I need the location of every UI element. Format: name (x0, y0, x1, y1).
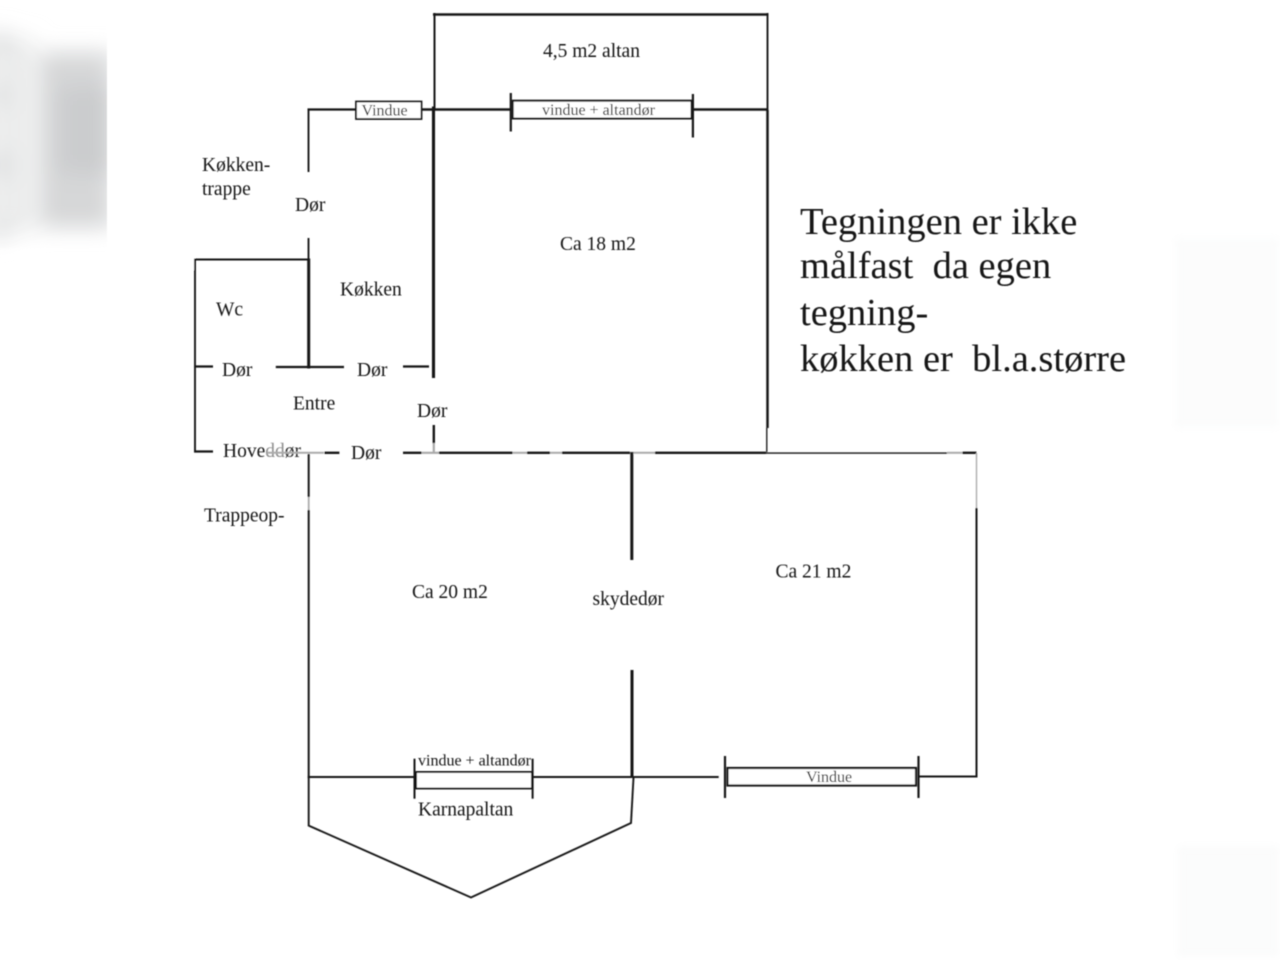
svg-text:Ca 21 m2: Ca 21 m2 (776, 562, 852, 583)
svg-text:skydedør: skydedør (593, 589, 665, 610)
svg-text:Vindue: Vindue (806, 769, 852, 786)
svg-text:Dør: Dør (295, 195, 326, 216)
svg-text:Tegningen er ikke: Tegningen er ikke (800, 201, 1077, 243)
svg-text:Køkken-: Køkken- (202, 155, 270, 176)
svg-text:tegning-: tegning- (800, 292, 928, 334)
svg-text:Wc: Wc (216, 300, 243, 321)
svg-text:Dør: Dør (417, 401, 448, 422)
svg-text:Dør: Dør (222, 360, 253, 381)
svg-text:Karnapaltan: Karnapaltan (418, 800, 514, 821)
svg-text:Dør: Dør (357, 360, 388, 381)
svg-text:4,5 m2 altan: 4,5 m2 altan (543, 41, 640, 62)
svg-text:trappe: trappe (202, 179, 251, 200)
svg-text:vindue + altandør: vindue + altandør (418, 753, 532, 770)
svg-text:Trappeop-: Trappeop- (204, 506, 285, 527)
svg-text:Vindue: Vindue (362, 103, 408, 120)
svg-text:Entre: Entre (293, 394, 335, 415)
svg-text:målfast da egen: målfast da egen (800, 245, 1051, 287)
svg-text:Dør: Dør (351, 443, 382, 464)
svg-text:vindue + altandør: vindue + altandør (542, 102, 656, 119)
svg-text:Hoveddør: Hoveddør (223, 441, 302, 462)
svg-text:køkken er bl.a.større: køkken er bl.a.større (800, 338, 1126, 380)
svg-text:Ca 20 m2: Ca 20 m2 (412, 582, 488, 603)
svg-text:Køkken: Køkken (340, 280, 402, 301)
svg-text:Ca 18 m2: Ca 18 m2 (560, 234, 636, 255)
